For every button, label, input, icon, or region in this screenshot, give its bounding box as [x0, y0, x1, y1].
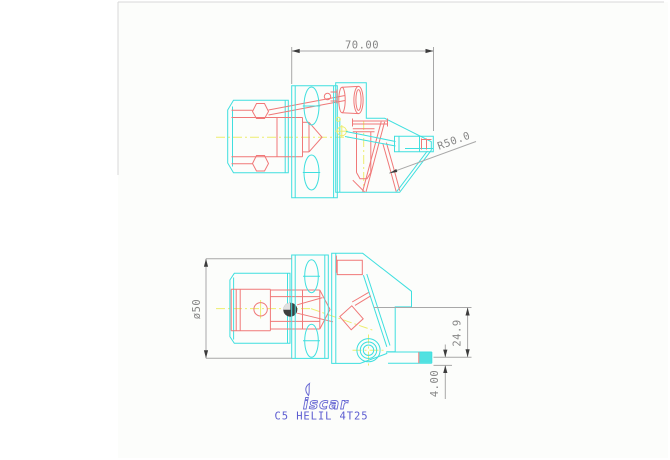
nozzle-dimension-label: 4.00: [429, 370, 441, 397]
diameter-dimension-label: ø50: [191, 299, 203, 319]
page-border: [118, 2, 668, 458]
cad-canvas: 70.00 R50.0: [0, 0, 670, 460]
width-dimension-label: 70.00: [345, 40, 379, 52]
cad-drawing: 70.00 R50.0: [0, 0, 670, 460]
height-dimension-label: 24.9: [452, 319, 464, 346]
part-number: C5 HELIL 4T25: [275, 411, 369, 423]
